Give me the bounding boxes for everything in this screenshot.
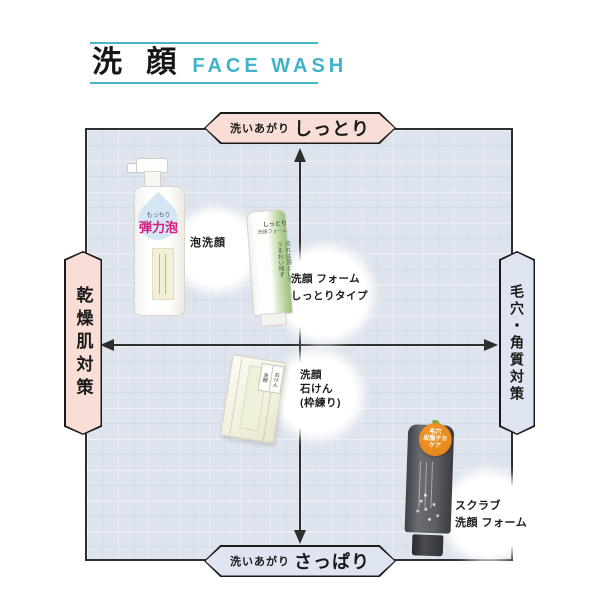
axis-top-prefix: 洗いあがり <box>230 120 290 136</box>
scrub-copy-lines <box>415 461 433 508</box>
axis-bottom-main: さっぱり <box>294 548 370 574</box>
axis-label-right: 毛穴・角質対策 <box>499 251 535 435</box>
scrub-cap <box>412 534 444 556</box>
arrow-down-icon <box>294 530 306 544</box>
label-scrub: スクラブ 洗顔 フォーム <box>455 498 527 532</box>
label-soap: 洗顔 石けん (枠練り) <box>300 368 341 410</box>
axis-bottom-prefix: 洗いあがり <box>230 553 290 569</box>
product-foam-moist-tube: しっとり 洗顔フォーム 汚れは落として うるおい残す <box>246 209 300 330</box>
title-japanese: 洗 顔 <box>92 46 184 80</box>
axis-right-text: 毛穴・角質対策 <box>507 284 527 403</box>
scrub-beads <box>424 494 427 497</box>
page-title: 洗 顔 FACE WASH <box>92 46 347 80</box>
bottle-label-big: 弾力泡 <box>134 217 183 236</box>
header-rule-bottom <box>90 82 318 84</box>
tube-cap <box>260 312 287 327</box>
label-foam-wash: 泡洗顔 <box>190 234 226 250</box>
header-rule-top <box>90 42 318 44</box>
label-foam-moist: 洗顔 フォーム しっとりタイプ <box>291 271 368 305</box>
axis-label-bottom: 洗いあがり さっぱり <box>204 545 396 577</box>
arrow-up-icon <box>294 148 306 162</box>
axis-label-top: 洗いあがり しっとり <box>204 112 396 144</box>
arrow-left-icon <box>100 339 114 351</box>
product-scrub-tube: 毛穴 皮脂テカ ケア <box>404 421 461 561</box>
axis-left-text: 乾燥肌対策 <box>71 286 96 401</box>
title-english: FACE WASH <box>192 55 347 78</box>
tube-top-text: しっとり 洗顔フォーム <box>257 218 288 236</box>
bottle-text-panel <box>152 248 174 300</box>
axis-label-left: 乾燥肌対策 <box>64 251 102 435</box>
axis-top-main: しっとり <box>294 115 370 141</box>
page-root: 洗 顔 FACE WASH もっちり 弾力泡 しっとり 洗顔フォーム <box>0 0 600 600</box>
arrow-right-icon <box>484 339 498 351</box>
